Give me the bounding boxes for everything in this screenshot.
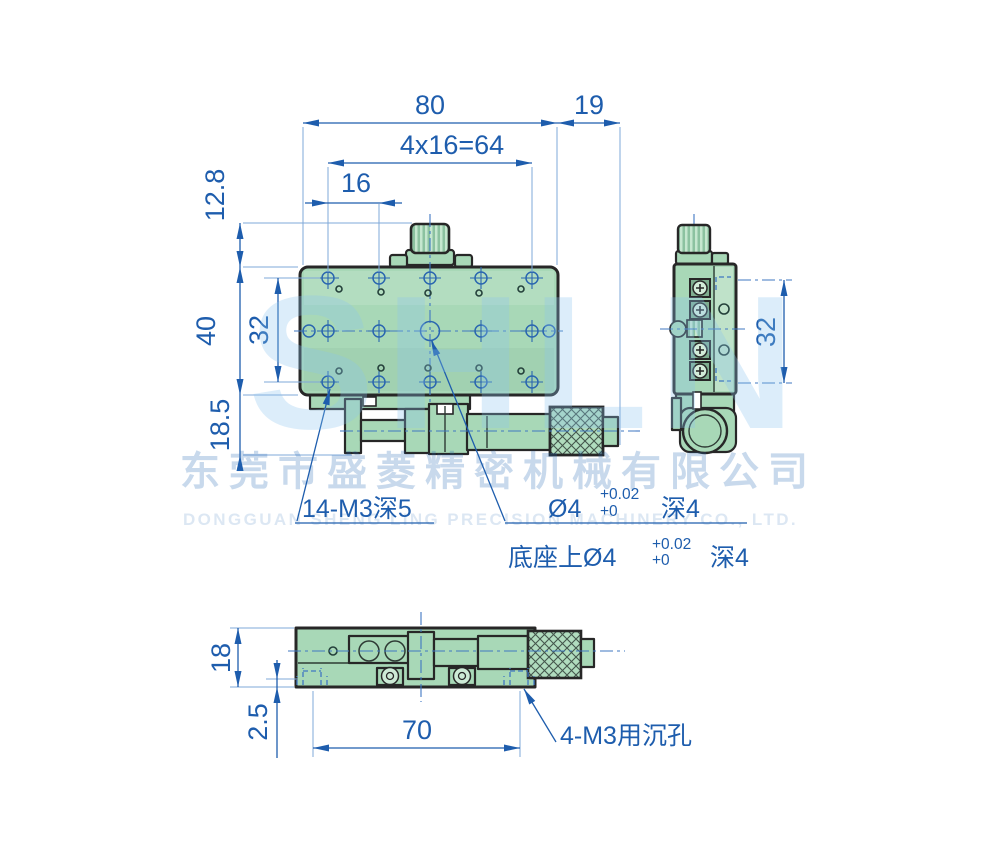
annotation-counterbore: 4-M3用沉孔 bbox=[560, 722, 692, 750]
top-view bbox=[294, 214, 640, 455]
bottom-micro-sleeve bbox=[478, 636, 528, 669]
dim-12-8: 12.8 bbox=[200, 169, 230, 222]
annotation-center-depth: 深4 bbox=[661, 495, 700, 523]
annotation-thread-holes: 14-M3深5 bbox=[302, 495, 412, 523]
dim-32-left: 32 bbox=[244, 315, 274, 345]
side-view bbox=[660, 214, 748, 453]
bottom-view bbox=[288, 612, 625, 702]
side-slot bbox=[693, 392, 701, 409]
dim-18-5: 18.5 bbox=[205, 399, 235, 452]
dim-19: 19 bbox=[574, 90, 604, 120]
annotation-base-tol-lower: +0 bbox=[652, 552, 670, 569]
top-tab-right bbox=[455, 255, 472, 267]
side-tab bbox=[712, 253, 728, 264]
dim-18: 18 bbox=[206, 643, 236, 673]
engineering-drawing: 80 19 4x16=64 16 12.8 40 32 18.5 32 18 2… bbox=[0, 0, 1001, 853]
dim-70: 70 bbox=[402, 715, 432, 745]
bracket-arm bbox=[345, 399, 361, 453]
annotation-center-hole: Ø4 bbox=[548, 495, 581, 523]
annotation-base-depth: 深4 bbox=[710, 544, 749, 572]
bottom-micro-body bbox=[434, 639, 478, 666]
annotation-center-tol-lower: +0 bbox=[600, 503, 618, 520]
drawing-canvas: 80 19 4x16=64 16 12.8 40 32 18.5 32 18 2… bbox=[0, 0, 1001, 853]
dim-32-side: 32 bbox=[751, 317, 781, 347]
dim-80: 80 bbox=[415, 90, 445, 120]
strip-notch-1 bbox=[363, 397, 376, 406]
side-ear bbox=[672, 398, 681, 430]
bottom-thimble bbox=[528, 631, 581, 678]
annotation-base-hole: 底座上Ø4 bbox=[508, 544, 616, 572]
dim-16: 16 bbox=[341, 168, 371, 198]
top-tab-left bbox=[390, 255, 407, 267]
side-knurled-knob bbox=[678, 225, 710, 253]
dim-2-5: 2.5 bbox=[243, 703, 273, 741]
dim-40: 40 bbox=[191, 316, 221, 346]
annotation-center-tol-upper: +0.02 bbox=[600, 486, 639, 503]
annotation-base-tol-upper: +0.02 bbox=[652, 536, 691, 553]
dim-4x16-64: 4x16=64 bbox=[400, 130, 504, 160]
bottom-cap bbox=[581, 639, 594, 667]
micrometer-barrel bbox=[467, 414, 550, 450]
